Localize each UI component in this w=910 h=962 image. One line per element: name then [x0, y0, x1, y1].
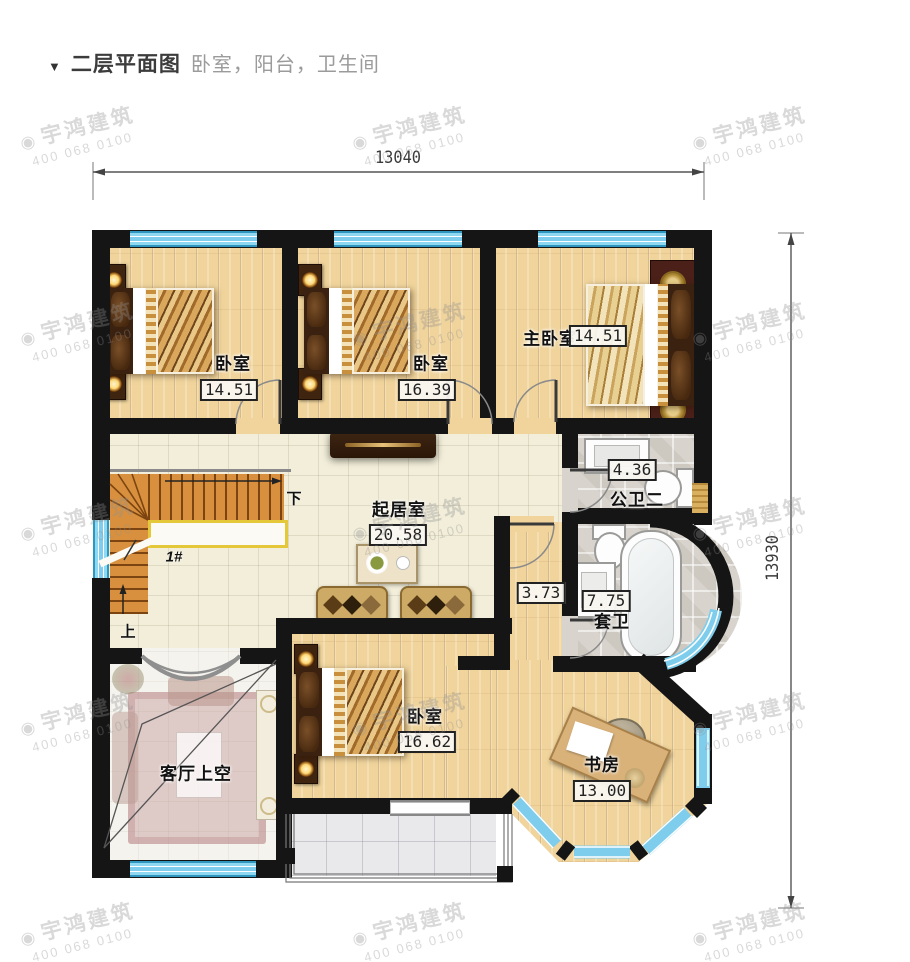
hall-area: 3.73	[517, 582, 566, 604]
lamp-icon	[298, 651, 314, 667]
living-area: 20.58	[369, 524, 427, 546]
void-faded-sofa-left	[112, 712, 138, 804]
floorplan-page: ▼ 二层平面图 卧室，阳台，卫生间	[0, 0, 910, 962]
master-area: 14.51	[569, 325, 627, 347]
window-bedroom1	[130, 231, 257, 247]
living-label: 起居室	[372, 496, 426, 521]
wall-hall-left	[494, 516, 510, 658]
void-label: 客厅上空	[160, 760, 232, 785]
nightstand	[294, 754, 318, 784]
stair-down-label: 下	[286, 488, 301, 509]
stair-flight-upper	[148, 474, 284, 520]
watermark: ◉宇鸿建筑 400 068 0100	[16, 894, 141, 962]
stair-number: 1#	[166, 549, 183, 566]
wall-left-upper	[92, 248, 110, 520]
coffee-table	[356, 544, 418, 584]
watermark-logo-icon: ◉	[18, 926, 40, 949]
wall-void-north-l	[92, 648, 142, 664]
door-gap-public-bath	[562, 468, 578, 512]
bedroom3-label: 卧室	[407, 703, 443, 728]
public-bath-label: 公卫二	[610, 486, 664, 511]
bedroom2-area: 16.39	[398, 379, 456, 401]
study-label: 书房	[584, 751, 620, 776]
watermark: ◉宇鸿建筑 400 068 0100	[348, 894, 473, 962]
dimension-right: 13930	[763, 535, 783, 581]
void-faded-sofa-top	[168, 676, 234, 706]
door-gap-hall	[510, 516, 554, 532]
bedroom1-bed	[108, 288, 214, 374]
wall-bedrooms-south	[92, 418, 712, 434]
balcony-slider-window	[390, 800, 470, 816]
watermark: ◉宇鸿建筑 400 068 0100	[688, 98, 813, 170]
window-stairs	[93, 520, 109, 578]
stair-up-label: 上	[120, 621, 135, 642]
stair-winders	[110, 474, 148, 520]
wall-bedroom1-2	[282, 248, 298, 426]
suite-bath-label: 套卫	[594, 608, 630, 633]
wall-hall-stub	[458, 656, 510, 670]
watermark-logo-icon: ◉	[690, 130, 712, 153]
wall-void-right	[276, 634, 292, 878]
bedroom2-bed	[304, 288, 410, 374]
watermark-logo-icon: ◉	[18, 326, 40, 349]
wall-bedroom3-north	[276, 618, 512, 634]
wall-right-upper	[694, 230, 712, 525]
door-gap-bedroom2	[448, 418, 492, 434]
balcony-floor	[290, 810, 496, 876]
stairwell-opening	[148, 520, 288, 548]
watermark-logo-icon: ◉	[690, 926, 712, 949]
page-subtitle: 卧室，阳台，卫生间	[191, 48, 380, 77]
watermark: ◉宇鸿建筑 400 068 0100	[16, 98, 141, 170]
window-bedroom2	[334, 231, 462, 247]
door-gap-master	[514, 418, 556, 434]
watermark-logo-icon: ◉	[350, 926, 372, 949]
study-area: 13.00	[573, 780, 631, 802]
door-gap-bedroom1	[236, 418, 280, 434]
wall-void-north-r	[240, 648, 292, 664]
lamp-icon	[298, 761, 314, 777]
dimension-top: 13040	[375, 148, 421, 168]
wall-left-lower	[92, 578, 110, 878]
window-void	[130, 861, 256, 877]
bedroom2-label: 卧室	[413, 350, 449, 375]
page-header: ▼ 二层平面图 卧室，阳台，卫生间	[48, 48, 380, 78]
window-master	[538, 231, 666, 247]
public-bath-area: 4.36	[608, 459, 657, 481]
lamp-icon	[302, 376, 318, 392]
bath-vent-door	[692, 483, 708, 513]
watermark-logo-icon: ◉	[18, 130, 40, 153]
watermark-logo-icon: ◉	[350, 130, 372, 153]
door-gap-suite-bath	[562, 616, 578, 656]
lamp-icon	[302, 272, 318, 288]
bedroom3-bed	[296, 668, 404, 756]
page-title: 二层平面图	[71, 48, 181, 78]
wall-suite-south	[553, 656, 696, 672]
triangle-bullet-icon: ▼	[48, 59, 61, 74]
bedroom1-label: 卧室	[215, 350, 251, 375]
bedroom3-area: 16.62	[398, 731, 456, 753]
wall-bedroom2-master	[480, 248, 496, 426]
watermark-logo-icon: ◉	[18, 716, 40, 739]
void-faded-plant	[112, 664, 144, 694]
watermark-logo-icon: ◉	[18, 521, 40, 544]
bedroom1-area: 14.51	[200, 379, 258, 401]
stair-handrail	[103, 469, 291, 472]
watermark: ◉宇鸿建筑 400 068 0100	[688, 894, 813, 962]
tv-cabinet	[330, 432, 436, 458]
